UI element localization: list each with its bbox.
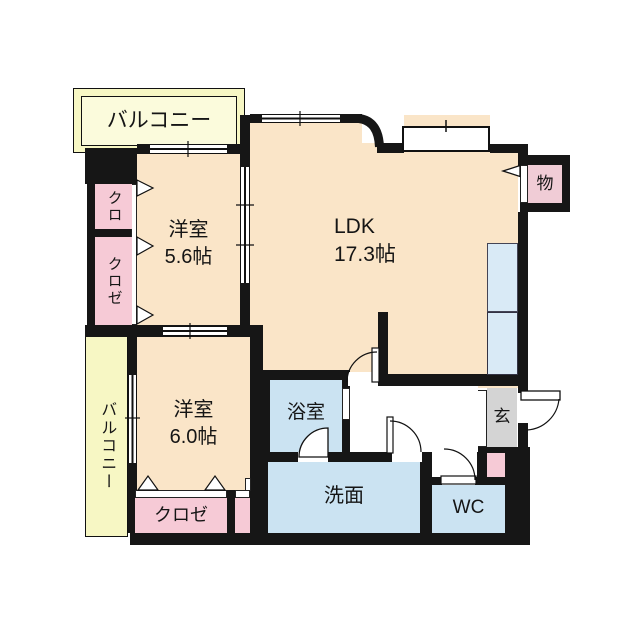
- door-opening: [298, 452, 328, 462]
- door-arc-wc: [444, 449, 475, 480]
- label-entrance: 玄: [487, 388, 517, 447]
- closet-door: [235, 490, 250, 498]
- wall-stub: [378, 312, 388, 386]
- door-mark: [245, 478, 251, 491]
- wall: [250, 337, 263, 452]
- exterior-notch: [490, 98, 518, 144]
- label-balcony-top: バルコニー: [81, 96, 237, 146]
- door-opening: [442, 477, 475, 485]
- label-bedroom2: 洋室 6.0帖: [137, 396, 250, 452]
- wall: [240, 115, 250, 167]
- wall: [475, 477, 505, 485]
- closet-sliver: [235, 498, 250, 533]
- kitchen-sink: [487, 312, 518, 375]
- floorplan: バルコニー クロ クロゼ 洋室 5.6帖 LDK 17.3帖 物 バルコニー 洋…: [0, 0, 640, 640]
- exterior-notch: [362, 98, 404, 143]
- bedroom1-name: 洋室: [169, 217, 209, 244]
- label-closet-kuroze: クロゼ: [95, 237, 132, 325]
- entrance-step: [477, 390, 487, 447]
- wall: [518, 212, 528, 393]
- wall: [340, 114, 362, 123]
- sliding-door: [240, 167, 250, 283]
- wall: [377, 143, 404, 153]
- wall: [505, 485, 530, 533]
- sliding-door: [163, 326, 227, 336]
- wall: [490, 144, 528, 153]
- wall: [95, 229, 132, 237]
- wall: [432, 477, 442, 485]
- bedroom2-name: 洋室: [174, 397, 214, 424]
- kitchen-counter: [487, 243, 518, 312]
- ldk-name: LDK: [334, 213, 375, 241]
- closet-door: [135, 490, 227, 498]
- label-bathroom: 浴室: [270, 400, 342, 426]
- label-wc: WC: [432, 495, 505, 521]
- storage-door: [520, 165, 528, 203]
- door-opening: [348, 372, 378, 386]
- hallway: [350, 386, 478, 452]
- window: [262, 114, 340, 123]
- label-washroom: 洗面: [268, 483, 420, 509]
- wall: [250, 452, 268, 533]
- wall: [128, 327, 137, 375]
- pink-cabinet: [487, 453, 505, 477]
- door-opening: [518, 393, 528, 423]
- partition: [342, 388, 350, 420]
- label-closet-bottom: クロゼ: [135, 498, 227, 533]
- window: [128, 375, 137, 463]
- wall: [227, 490, 235, 533]
- wall: [420, 452, 432, 533]
- door-arc-entrance: [527, 399, 559, 430]
- wall: [130, 533, 530, 545]
- ldk-size: 17.3帖: [334, 241, 396, 269]
- bay-window: [402, 126, 490, 152]
- wall: [87, 148, 95, 333]
- bedroom1-size: 5.6帖: [165, 244, 213, 271]
- door-opening: [392, 452, 422, 462]
- bedroom2-size: 6.0帖: [170, 424, 218, 451]
- label-bedroom1: 洋室 5.6帖: [137, 216, 240, 272]
- label-balcony-left: バルコニー: [85, 378, 128, 513]
- wall: [342, 420, 350, 452]
- label-storage: 物: [528, 165, 562, 203]
- label-closet-kuro: クロ: [95, 184, 132, 229]
- wall: [250, 114, 262, 123]
- label-ldk: LDK 17.3帖: [334, 212, 444, 270]
